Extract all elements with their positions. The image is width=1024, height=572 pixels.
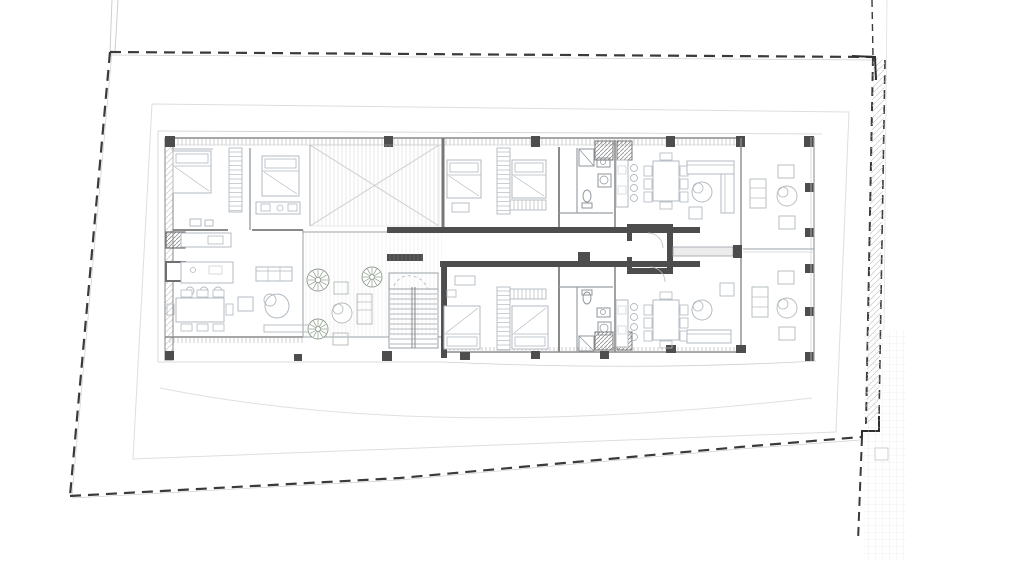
tree <box>308 319 328 339</box>
closet <box>617 141 632 160</box>
desk-item <box>277 205 283 211</box>
boundary-extension <box>872 0 873 57</box>
dining-chairs <box>181 290 224 297</box>
column <box>666 136 675 147</box>
site-faint-line <box>884 0 887 330</box>
side-table <box>720 283 734 296</box>
floor-plan-svg <box>0 0 1024 572</box>
glazing-mullions-south <box>167 338 303 343</box>
tree <box>362 267 382 287</box>
apartment-lower-right <box>616 283 734 348</box>
outdoor-chair <box>779 327 795 340</box>
dining-chairs <box>181 324 224 331</box>
dresser <box>205 220 213 226</box>
bridge-walkway <box>673 247 733 256</box>
bed <box>262 156 299 196</box>
dresser <box>190 219 201 226</box>
column <box>805 352 814 361</box>
dresser <box>510 200 546 210</box>
courtyard <box>304 233 442 345</box>
dining-chairs <box>644 166 652 202</box>
stool <box>631 175 638 182</box>
column <box>165 136 175 147</box>
dining-chair <box>660 153 672 160</box>
paving-grid <box>864 330 906 560</box>
deck-edge-top <box>158 131 822 134</box>
door-swing <box>648 233 663 248</box>
glazing-mullions-north <box>173 139 741 145</box>
basin-bowl <box>601 310 606 315</box>
road-edge-line <box>110 0 112 52</box>
dining-chair <box>660 292 672 299</box>
dining-table <box>653 161 679 201</box>
outdoor-chair <box>779 216 795 229</box>
column <box>804 136 814 147</box>
stool <box>631 324 638 331</box>
boundary-shadow <box>72 52 112 496</box>
desk-item <box>261 204 270 211</box>
stool <box>631 185 638 192</box>
elevator-door-jamb <box>627 230 632 241</box>
bed <box>173 151 211 193</box>
column <box>531 351 540 359</box>
terrace-lower <box>752 271 797 340</box>
door-jamb <box>578 252 590 261</box>
bed <box>512 306 548 349</box>
outdoor-sofa <box>752 287 768 317</box>
column <box>805 264 814 273</box>
toilet-tank <box>582 203 592 208</box>
dining-chairs <box>644 305 652 341</box>
stool <box>631 195 638 202</box>
toilet <box>583 292 591 304</box>
sofa <box>687 161 734 174</box>
stool <box>631 304 638 311</box>
road-edge-line <box>115 0 118 52</box>
apartment-left <box>167 148 310 332</box>
stool <box>631 165 638 172</box>
wardrobe <box>497 148 510 214</box>
property-boundary-left <box>70 52 110 496</box>
elevator-shaft-wall <box>667 224 673 274</box>
dresser <box>510 289 546 299</box>
washer-drum <box>600 324 608 332</box>
column <box>460 352 470 360</box>
outdoor-chair <box>778 165 794 178</box>
dining-chair <box>660 202 672 209</box>
desk <box>455 276 475 285</box>
terrain-line <box>160 388 812 418</box>
exterior-wall-west <box>165 138 173 360</box>
terrace-upper <box>750 165 797 229</box>
column <box>294 354 302 361</box>
outdoor-sofa <box>750 179 766 208</box>
shower-line <box>579 149 594 166</box>
washer-drum <box>600 176 608 184</box>
floor-plan-canvas <box>0 0 1024 572</box>
closet <box>595 141 613 160</box>
column <box>666 345 676 353</box>
dining-table <box>176 298 224 322</box>
stool <box>631 314 638 321</box>
elevator-door-jamb <box>627 257 632 268</box>
toilet <box>583 190 591 202</box>
elevator-shaft-wall <box>627 224 673 230</box>
column <box>382 351 392 361</box>
dining-table <box>653 300 679 340</box>
boundary-shadow <box>72 440 860 498</box>
sofa <box>256 267 292 281</box>
bed <box>512 160 546 198</box>
bed <box>447 160 481 198</box>
column <box>531 136 540 147</box>
column <box>165 351 174 360</box>
site-marker <box>875 448 888 460</box>
kitchen-counter <box>181 233 231 247</box>
armchair <box>238 297 253 311</box>
bridge-column <box>733 245 742 258</box>
tree <box>307 269 329 291</box>
wardrobe <box>229 148 242 212</box>
bench <box>452 203 469 212</box>
bed <box>444 306 480 349</box>
corridor-wall-south <box>440 261 700 267</box>
outdoor-chair <box>778 271 794 284</box>
desk-item <box>447 290 456 297</box>
side-table <box>689 207 702 219</box>
elevator-shaft-wall <box>627 268 673 274</box>
column <box>600 351 609 359</box>
dining-chair <box>226 304 233 315</box>
column <box>736 345 746 353</box>
kitchen-island <box>181 262 233 283</box>
property-boundary-right-lower <box>858 437 862 541</box>
column <box>805 183 814 192</box>
column <box>805 307 814 316</box>
property-boundary-top <box>110 52 873 57</box>
desk-item <box>288 204 297 211</box>
sofa <box>687 330 731 343</box>
apartment-upper-right <box>616 153 734 219</box>
wardrobe <box>497 287 510 350</box>
deck-edge-bottom <box>158 361 816 366</box>
column <box>805 228 814 237</box>
sofa-chaise <box>721 174 734 213</box>
